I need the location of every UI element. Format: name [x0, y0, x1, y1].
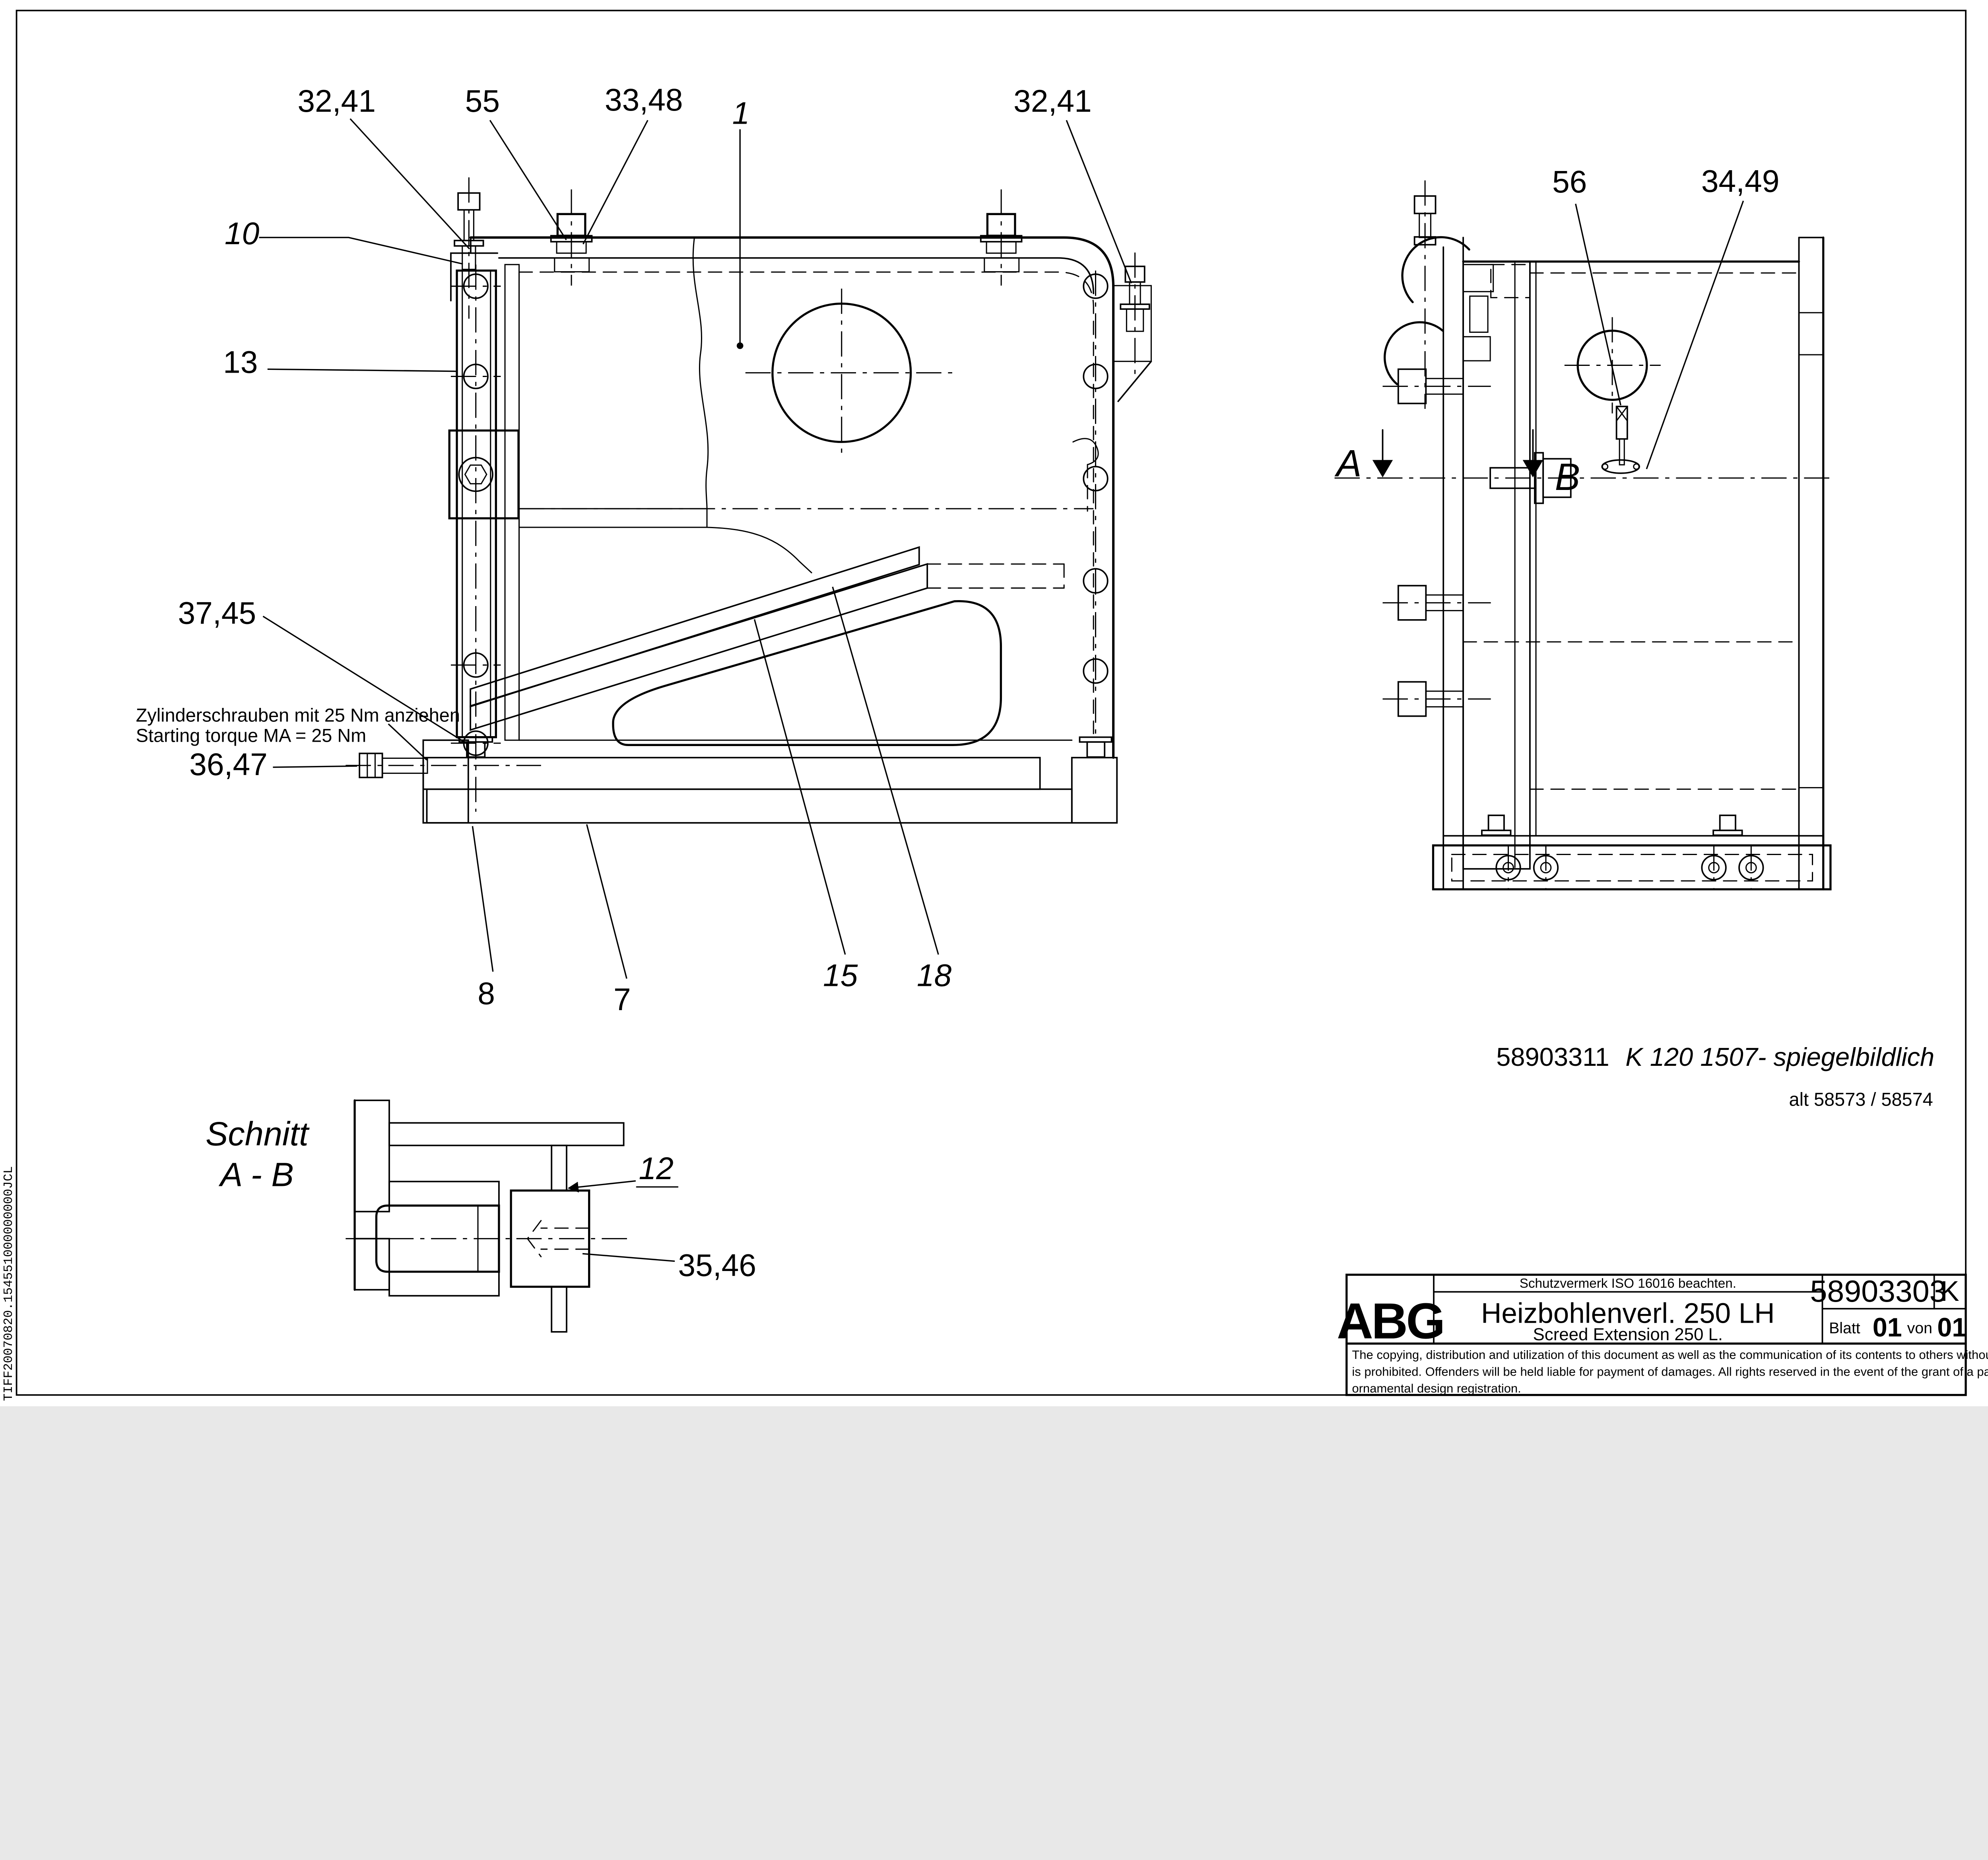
leader-line: [833, 587, 938, 955]
left-wall-section: [505, 264, 519, 740]
screw-head: [1720, 815, 1736, 830]
part-label-56: 56: [1552, 164, 1587, 199]
leader-line: [583, 120, 648, 244]
part-label-55: 55: [465, 84, 500, 119]
shelf-section: [519, 509, 707, 527]
sheet-label: Blatt: [1829, 1320, 1860, 1337]
part-label-32-41-left: 32,41: [297, 84, 376, 119]
leader-line: [754, 619, 845, 954]
valve-stem: [1617, 406, 1627, 439]
part-label-8: 8: [478, 976, 495, 1011]
sheet-border: [17, 10, 1966, 1395]
drawing-number: 58903303: [1810, 1274, 1947, 1308]
cap-screw-right: [1079, 737, 1111, 757]
spring-hook: [1073, 439, 1098, 465]
thin-plate-lower: [551, 1287, 567, 1332]
base-beam: [1433, 845, 1830, 889]
manufacturer-logo: ABG: [1337, 1293, 1444, 1349]
part-label-36-47: 36,47: [189, 747, 268, 782]
title-block: ABG Schutzvermerk ISO 16016 beachten. He…: [1337, 1274, 1988, 1395]
leader-line: [388, 724, 427, 760]
side-plate: [1463, 262, 1530, 869]
base-cap-screw: [1482, 815, 1511, 835]
reference-number: 58903311: [1496, 1042, 1609, 1071]
right-foot-block: [1072, 758, 1117, 823]
part-label-7: 7: [613, 982, 631, 1017]
side-hex-bolt: [1382, 586, 1491, 620]
clamp-plate: [1463, 337, 1490, 361]
clamp-hook-upper: [1402, 237, 1469, 302]
leader-line: [350, 119, 470, 249]
bolt-32-41-right: [1113, 253, 1151, 401]
side-bracket: [1113, 286, 1151, 362]
part-label-35-46: 35,46: [678, 1248, 756, 1283]
wall-section-lower: [355, 1239, 389, 1290]
sole-plate: [427, 789, 1072, 823]
drawing-sheet: TIFF20070820.154551000000000JCL: [0, 0, 1988, 1406]
drawing-title-en: Screed Extension 250 L.: [1533, 1325, 1723, 1344]
housing-inner-top: [499, 258, 1093, 293]
clamp-hook-lower: [1385, 322, 1443, 384]
cut-letter-a: A: [1334, 443, 1362, 485]
wear-plate-crosshatched: [470, 564, 927, 730]
clamp-plate: [1463, 264, 1493, 292]
leader-line: [1576, 204, 1621, 405]
thin-plate-upper: [551, 1145, 567, 1190]
left-foot-block: [423, 740, 468, 823]
part-label-33-48: 33,48: [605, 82, 683, 117]
part-label-12: 12: [639, 1151, 674, 1186]
shelf-curve: [707, 527, 812, 573]
leader-line: [1066, 120, 1131, 283]
leader-line: [490, 120, 566, 240]
cut-arrow-b-icon: [1523, 460, 1543, 478]
leader-line: [1646, 201, 1743, 469]
torque-note-en: Starting torque MA = 25 Nm: [136, 725, 367, 746]
base-screws: [1496, 845, 1763, 889]
grease-valve-56: [1602, 406, 1639, 473]
clamp-screw: [1470, 296, 1488, 332]
bushing-section-upper: [389, 1182, 499, 1205]
legal-text-line1: The copying, distribution and utilizatio…: [1352, 1348, 1988, 1362]
wall-section-upper: [355, 1100, 389, 1212]
housing-outer-contour: [471, 237, 1113, 758]
leader-line: [582, 1254, 675, 1261]
part-label-18: 18: [917, 958, 952, 993]
flange-hole: [1634, 464, 1639, 469]
leader-line: [587, 824, 627, 979]
leader-line: [268, 369, 458, 371]
sheet-number: 01: [1873, 1313, 1902, 1342]
legal-text-line3: ornamental design registration.: [1352, 1382, 1521, 1395]
side-hex-bolt: [1382, 369, 1491, 403]
side-view: A B: [1334, 181, 1831, 890]
film-code-vertical-text: TIFF20070820.154551000000000JCL: [2, 1166, 16, 1401]
base-plate: [423, 758, 1040, 789]
part-label-34-49: 34,49: [1701, 163, 1780, 198]
reference-variant: K 120 1507- spiegelbildlich: [1625, 1042, 1934, 1071]
revision-letter: K: [1940, 1276, 1959, 1307]
break-line: [693, 238, 708, 509]
cut-arrow-a-icon: [1373, 460, 1393, 478]
leader-line: [472, 826, 493, 972]
leader-line-arrow: [569, 1181, 636, 1188]
alternative-reference: alt 58573 / 58574: [1789, 1089, 1933, 1110]
main-section-view: [346, 177, 1151, 823]
section-title-line2: A - B: [218, 1155, 294, 1193]
leader-line: [259, 237, 463, 264]
valve-pin: [1619, 439, 1624, 465]
side-hex-bolt: [1382, 682, 1491, 716]
arm-section: [389, 1123, 624, 1146]
protection-note: Schutzvermerk ISO 16016 beachten.: [1520, 1276, 1736, 1291]
leader-dot: [737, 342, 744, 349]
cut-letter-b: B: [1555, 456, 1580, 498]
part-label-1: 1: [732, 95, 750, 130]
detail-section-view: Schnitt A - B: [206, 1100, 628, 1332]
bushing-section-lower: [389, 1272, 499, 1296]
section-title-line1: Schnitt: [206, 1115, 310, 1153]
sheet-of-label: von: [1907, 1320, 1932, 1337]
heater-plate-upper: [470, 547, 919, 707]
clamp-bolt: [1415, 181, 1436, 409]
part-label-32-41-right: 32,41: [1013, 84, 1092, 119]
screw-head: [1489, 815, 1504, 830]
sheet-total: 01: [1937, 1313, 1967, 1342]
part-label-37-45: 37,45: [178, 596, 256, 631]
hidden-pocket: [1491, 264, 1530, 297]
screw-head: [1087, 742, 1105, 757]
right-hole-column: [1083, 270, 1107, 739]
lower-opening: [613, 601, 1001, 745]
leader-line: [273, 766, 357, 767]
technical-drawing: TIFF20070820.154551000000000JCL: [0, 0, 1988, 1406]
base-cap-screw: [1713, 815, 1742, 835]
part-label-15: 15: [823, 958, 858, 993]
flange-hole: [1602, 464, 1608, 469]
torque-note-de: Zylinderschrauben mit 25 Nm anziehen: [136, 705, 460, 725]
part-label-10: 10: [225, 216, 260, 251]
part-label-13: 13: [223, 344, 258, 379]
legal-text-line2: is prohibited. Offenders will be held li…: [1352, 1364, 1988, 1378]
